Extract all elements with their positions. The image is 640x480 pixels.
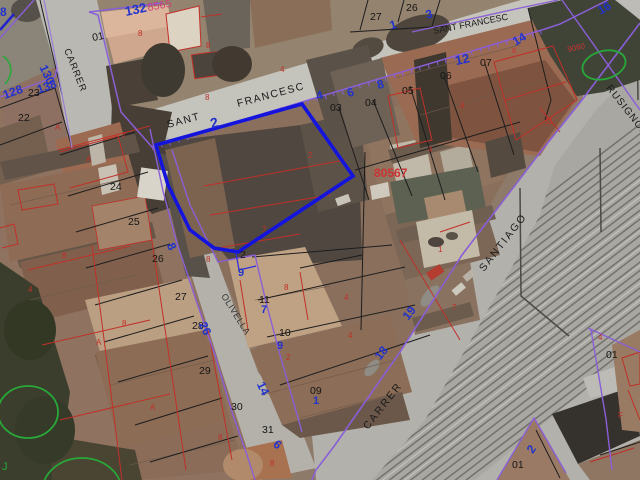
svg-text:03: 03	[330, 102, 342, 114]
svg-text:4: 4	[428, 145, 433, 154]
svg-text:7: 7	[262, 225, 267, 234]
svg-text:9: 9	[277, 340, 283, 352]
svg-text:4: 4	[344, 293, 349, 302]
svg-text:8: 8	[512, 48, 516, 55]
svg-text:2: 2	[240, 249, 246, 261]
svg-text:1: 1	[313, 395, 319, 407]
svg-text:2: 2	[308, 151, 313, 160]
svg-text:04: 04	[365, 97, 377, 109]
svg-text:8: 8	[270, 459, 275, 468]
svg-text:F: F	[618, 411, 623, 420]
svg-text:10: 10	[279, 327, 291, 339]
svg-text:8: 8	[205, 93, 210, 102]
svg-text:26: 26	[406, 2, 418, 14]
svg-text:80567: 80567	[374, 166, 408, 180]
svg-text:8: 8	[138, 29, 143, 38]
svg-text:8: 8	[206, 41, 211, 50]
svg-text:01: 01	[512, 459, 524, 471]
svg-text:06: 06	[440, 70, 452, 82]
svg-text:8: 8	[62, 251, 67, 260]
svg-text:8: 8	[218, 433, 223, 442]
svg-text:8: 8	[122, 319, 127, 328]
svg-text:9: 9	[238, 267, 244, 279]
svg-text:4: 4	[28, 285, 33, 294]
svg-text:A: A	[86, 155, 92, 164]
svg-text:8: 8	[206, 255, 211, 264]
svg-text:A: A	[96, 338, 102, 347]
svg-text:07: 07	[480, 57, 492, 69]
svg-text:7: 7	[452, 303, 457, 312]
svg-text:24: 24	[110, 181, 122, 193]
svg-text:25: 25	[128, 216, 140, 228]
svg-text:8: 8	[284, 283, 289, 292]
svg-text:05: 05	[402, 85, 414, 97]
svg-text:1: 1	[438, 245, 443, 254]
svg-text:J: J	[2, 461, 8, 473]
svg-text:4: 4	[598, 333, 603, 342]
svg-text:29: 29	[199, 365, 211, 377]
svg-text:A: A	[55, 123, 61, 132]
svg-text:30: 30	[231, 401, 243, 413]
svg-text:01: 01	[606, 349, 618, 361]
svg-text:7: 7	[122, 131, 127, 140]
svg-text:4: 4	[280, 65, 285, 74]
svg-text:11: 11	[545, 117, 554, 126]
svg-text:26: 26	[152, 253, 164, 265]
svg-text:7: 7	[261, 304, 267, 316]
svg-text:8: 8	[460, 101, 465, 110]
svg-text:4: 4	[348, 331, 353, 340]
svg-text:A: A	[150, 403, 156, 412]
svg-text:27: 27	[175, 291, 187, 303]
svg-text:12: 12	[454, 50, 471, 68]
svg-text:8: 8	[0, 5, 7, 19]
svg-text:31: 31	[262, 424, 274, 436]
svg-text:27: 27	[370, 11, 382, 23]
svg-text:2: 2	[286, 353, 291, 362]
svg-text:22: 22	[18, 112, 30, 124]
